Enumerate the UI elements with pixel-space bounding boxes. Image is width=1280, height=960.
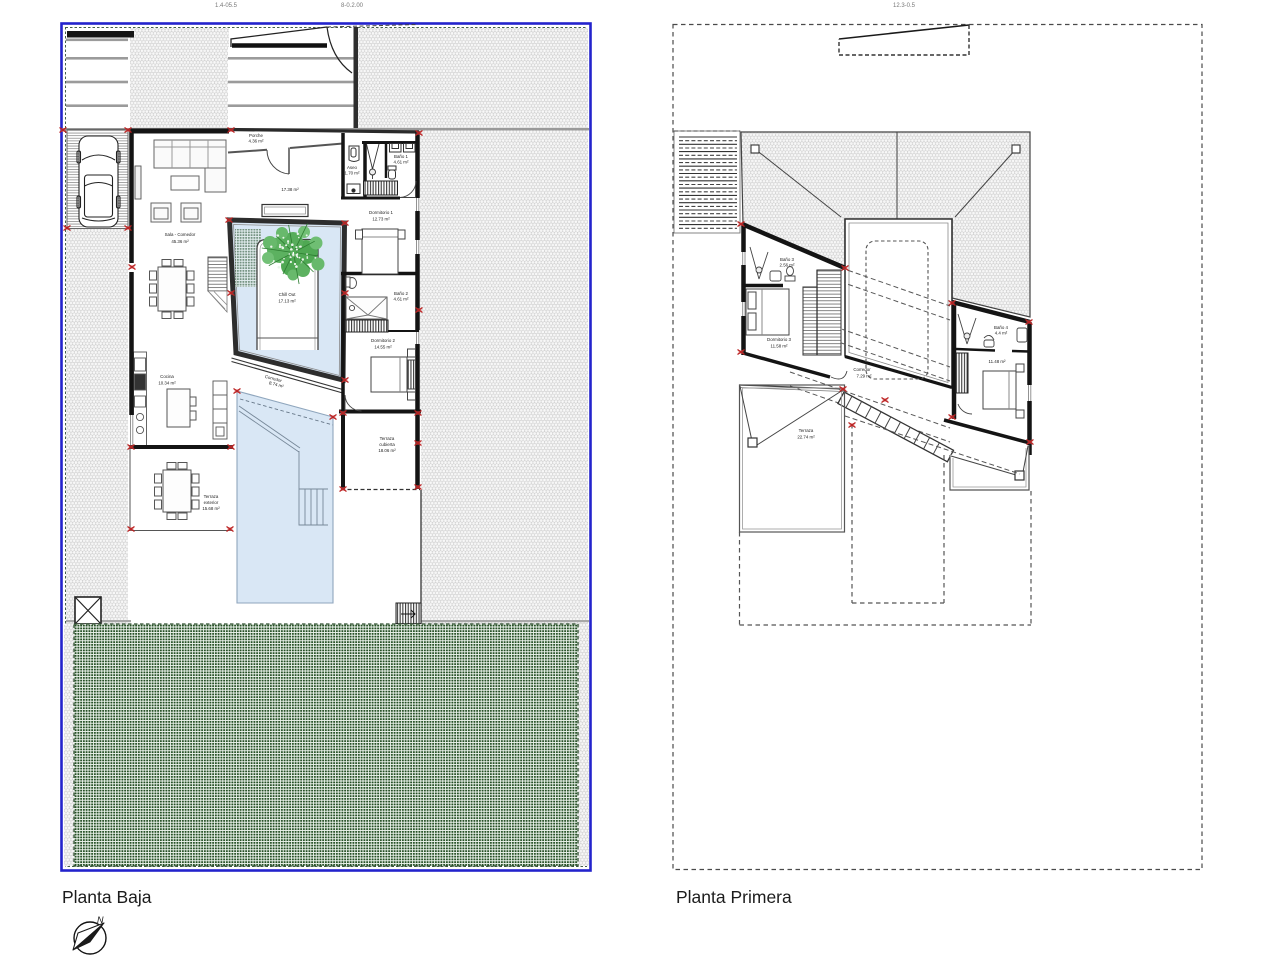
svg-text:4.4 m²: 4.4 m² [995,331,1008,336]
svg-text:Terraza: Terraza [799,428,814,433]
svg-text:11.58 m²: 11.58 m² [770,344,788,349]
svg-text:Porche: Porche [249,133,263,138]
svg-text:Dormitorio 2: Dormitorio 2 [371,338,395,343]
svg-text:Corredor: Corredor [853,367,871,372]
svg-text:17.38 m²: 17.38 m² [281,187,299,192]
svg-text:Chill Out: Chill Out [279,292,297,297]
svg-text:11.48 m²: 11.48 m² [988,359,1006,364]
svg-text:cubierta: cubierta [379,442,395,447]
svg-text:4.61 m²: 4.61 m² [394,160,409,165]
svg-text:Baño 3: Baño 3 [780,257,794,262]
svg-text:18.06 m²: 18.06 m² [378,448,396,453]
svg-text:Baño 1: Baño 1 [394,154,408,159]
svg-text:Planta Primera: Planta Primera [676,887,792,907]
svg-text:45.36 m²: 45.36 m² [171,239,189,244]
svg-text:Dormitorio 3: Dormitorio 3 [767,337,791,342]
svg-text:7.29 m²: 7.29 m² [857,374,872,379]
svg-text:15.68 m²: 15.68 m² [202,506,220,511]
svg-text:1.70 m²: 1.70 m² [345,171,360,176]
svg-text:8-0.2.00: 8-0.2.00 [341,3,364,9]
svg-text:4.36 m²: 4.36 m² [249,139,264,144]
svg-text:Cocina: Cocina [160,374,174,379]
svg-text:22.74 m²: 22.74 m² [797,435,815,440]
svg-text:Aseo: Aseo [347,165,358,170]
svg-text:4.61 m²: 4.61 m² [394,297,409,302]
svg-text:exterior: exterior [204,500,219,505]
svg-text:2.56 m²: 2.56 m² [780,263,795,268]
svg-text:10.34 m²: 10.34 m² [158,381,176,386]
svg-text:Planta Baja: Planta Baja [62,887,152,907]
svg-text:14.55 m²: 14.55 m² [374,345,392,350]
svg-text:N: N [97,915,104,925]
svg-text:Sala - Comedor: Sala - Comedor [165,232,196,237]
svg-text:Terraza: Terraza [380,436,395,441]
svg-text:Dormitorio 1: Dormitorio 1 [369,210,393,215]
svg-text:Terraza: Terraza [204,494,219,499]
svg-text:17.13 m²: 17.13 m² [278,299,296,304]
svg-text:12.3-0.5: 12.3-0.5 [893,3,916,9]
svg-text:1.4-05.5: 1.4-05.5 [215,3,238,9]
svg-text:Baño 4: Baño 4 [994,325,1008,330]
svg-text:12.73 m²: 12.73 m² [372,217,390,222]
svg-text:Baño 2: Baño 2 [394,291,408,296]
